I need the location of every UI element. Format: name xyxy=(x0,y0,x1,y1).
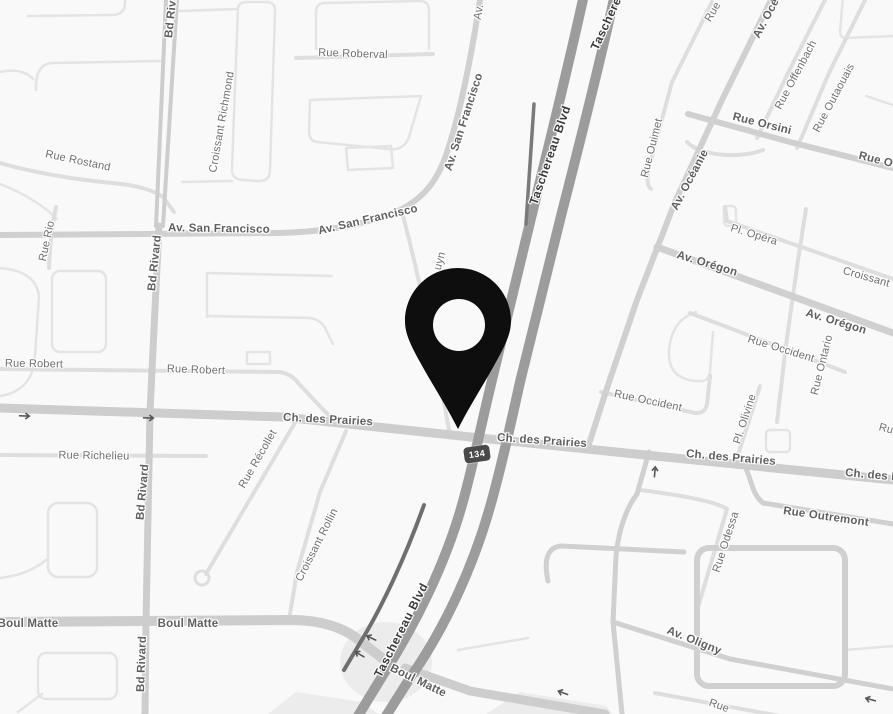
road-rue-offenbach xyxy=(757,0,827,138)
cul-de-sac xyxy=(195,571,209,585)
road-bd-rivard-twin xyxy=(156,0,177,226)
road-croissant-rollin xyxy=(290,431,346,614)
map-canvas[interactable]: 134 Rue RobervalAv.Av. San FranciscoAv. … xyxy=(0,0,893,714)
road-bd-rivard xyxy=(145,226,159,714)
road-rue-outaouais xyxy=(797,0,867,148)
route-shield-label: 134 xyxy=(468,448,486,460)
road-rue-rostand xyxy=(0,163,174,212)
road-rue-richelieu xyxy=(0,455,206,456)
road-pl-olivine xyxy=(737,386,760,458)
road-pl-opera xyxy=(725,207,893,279)
road-rue-roberval xyxy=(296,54,433,58)
road-av-oregon xyxy=(657,247,893,333)
road-av-san-francisco xyxy=(0,0,481,235)
road-rue-recollet xyxy=(206,421,296,574)
road-rue-orsini xyxy=(688,114,893,168)
road-av-oligny xyxy=(613,622,893,689)
road-rue-ouimet xyxy=(648,2,713,189)
road-bottom-rue xyxy=(655,693,780,714)
